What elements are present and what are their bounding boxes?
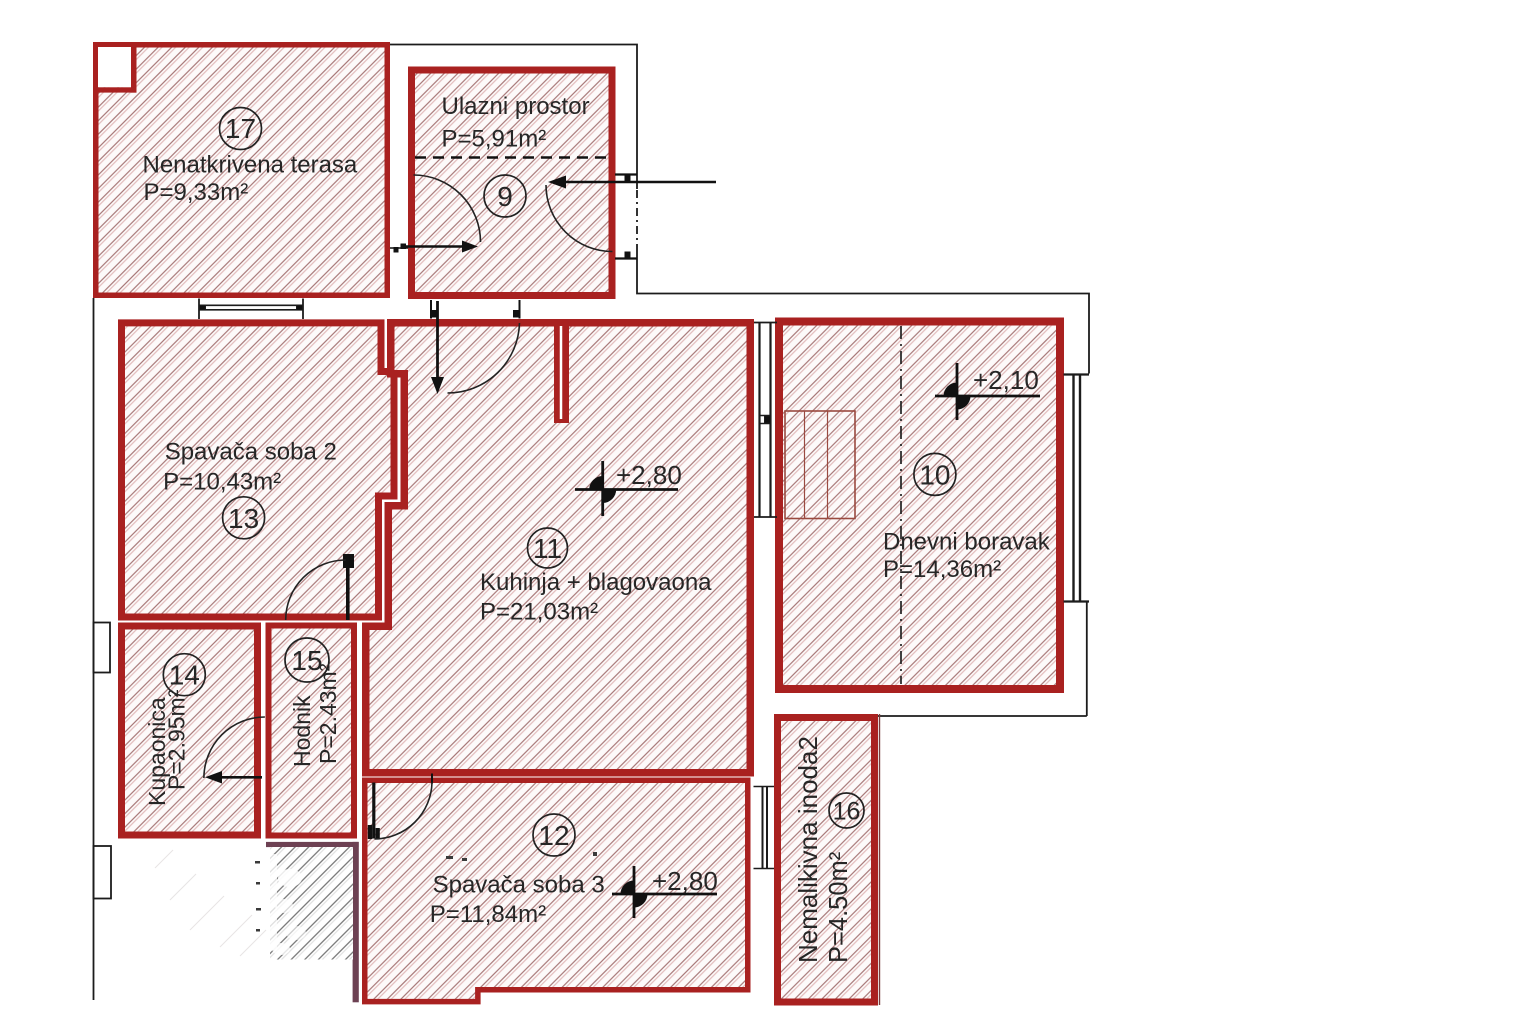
svg-text:Spavača soba 2: Spavača soba 2 [165,439,337,466]
svg-text:13: 13 [228,503,259,534]
svg-text:P=5,91m²: P=5,91m² [442,126,547,153]
svg-text:P=10,43m²: P=10,43m² [163,469,281,496]
svg-text:+2,80: +2,80 [616,460,682,490]
svg-text:P=2.43m²: P=2.43m² [315,663,341,764]
svg-text:Nemalikivna inoda2: Nemalikivna inoda2 [793,736,823,963]
svg-text:Kuhinja + blagovaona: Kuhinja + blagovaona [480,569,712,596]
svg-text:14: 14 [169,660,200,691]
svg-text:11: 11 [533,533,562,564]
svg-text:+2,10: +2,10 [973,365,1039,395]
svg-text:17: 17 [225,113,256,144]
svg-text:+2,80: +2,80 [652,866,718,896]
svg-text:Ulazni prostor: Ulazni prostor [442,93,590,120]
svg-text:Spavača soba 3: Spavača soba 3 [433,872,605,899]
svg-text:P=4.50m²: P=4.50m² [825,852,853,963]
svg-text:Dnevni boravak: Dnevni boravak [883,529,1051,556]
svg-text:P=14,36m²: P=14,36m² [883,556,1001,583]
svg-text:P=2.95m²: P=2.95m² [164,689,190,790]
svg-text:12: 12 [538,820,569,851]
svg-text:P=9,33m²: P=9,33m² [144,179,249,206]
svg-text:Nenatkrivena terasa: Nenatkrivena terasa [143,152,358,179]
svg-text:16: 16 [833,798,861,826]
svg-text:9: 9 [497,181,513,212]
svg-text:Hodnik: Hodnik [289,695,315,767]
svg-text:10: 10 [919,459,950,490]
svg-text:P=21,03m²: P=21,03m² [480,599,598,626]
svg-text:P=11,84m²: P=11,84m² [430,901,546,928]
